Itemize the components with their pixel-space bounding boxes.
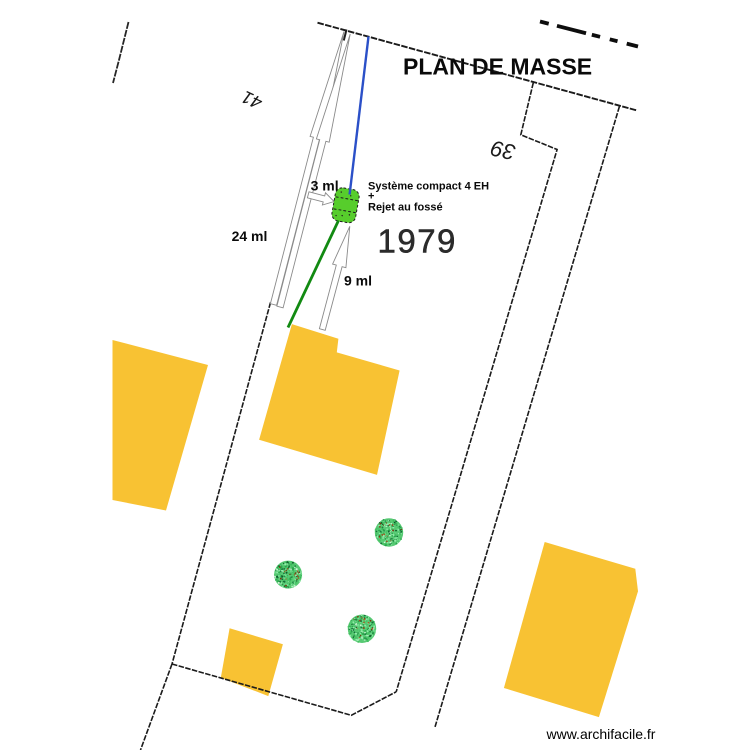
svg-text:24 ml: 24 ml — [232, 228, 268, 244]
svg-text:+: + — [368, 190, 374, 202]
svg-text:3 ml: 3 ml — [311, 178, 339, 194]
svg-text:www.archifacile.fr: www.archifacile.fr — [546, 726, 656, 742]
svg-text:1979: 1979 — [378, 223, 457, 260]
svg-text:Système compact 4 EH: Système compact 4 EH — [368, 181, 489, 193]
svg-text:9 ml: 9 ml — [344, 273, 372, 289]
svg-text:Rejet au fossé: Rejet au fossé — [368, 202, 443, 214]
svg-text:PLAN DE MASSE: PLAN DE MASSE — [403, 54, 592, 80]
